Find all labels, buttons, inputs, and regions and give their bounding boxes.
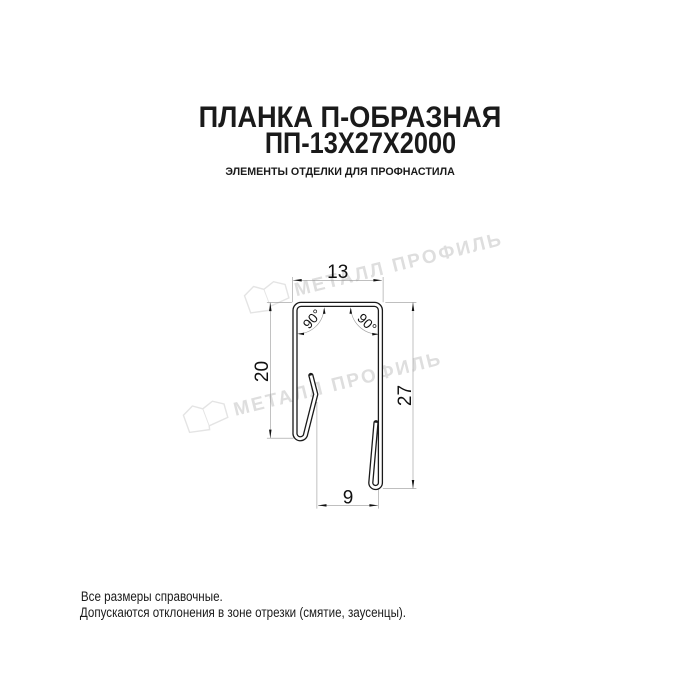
svg-text:Допускаются отклонения в зоне: Допускаются отклонения в зоне отрезки (с…: [80, 605, 406, 620]
svg-text:9: 9: [343, 488, 354, 509]
svg-text:ЭЛЕМЕНТЫ ОТДЕЛКИ ДЛЯ ПРОФНАСТИ: ЭЛЕМЕНТЫ ОТДЕЛКИ ДЛЯ ПРОФНАСТИЛА: [225, 166, 454, 178]
svg-text:20: 20: [252, 361, 273, 382]
svg-text:13: 13: [327, 262, 348, 283]
svg-text:Все размеры справочные.: Все размеры справочные.: [81, 589, 223, 604]
svg-text:27: 27: [395, 385, 416, 406]
svg-text:ПП-13Х27Х2000: ПП-13Х27Х2000: [265, 127, 456, 160]
